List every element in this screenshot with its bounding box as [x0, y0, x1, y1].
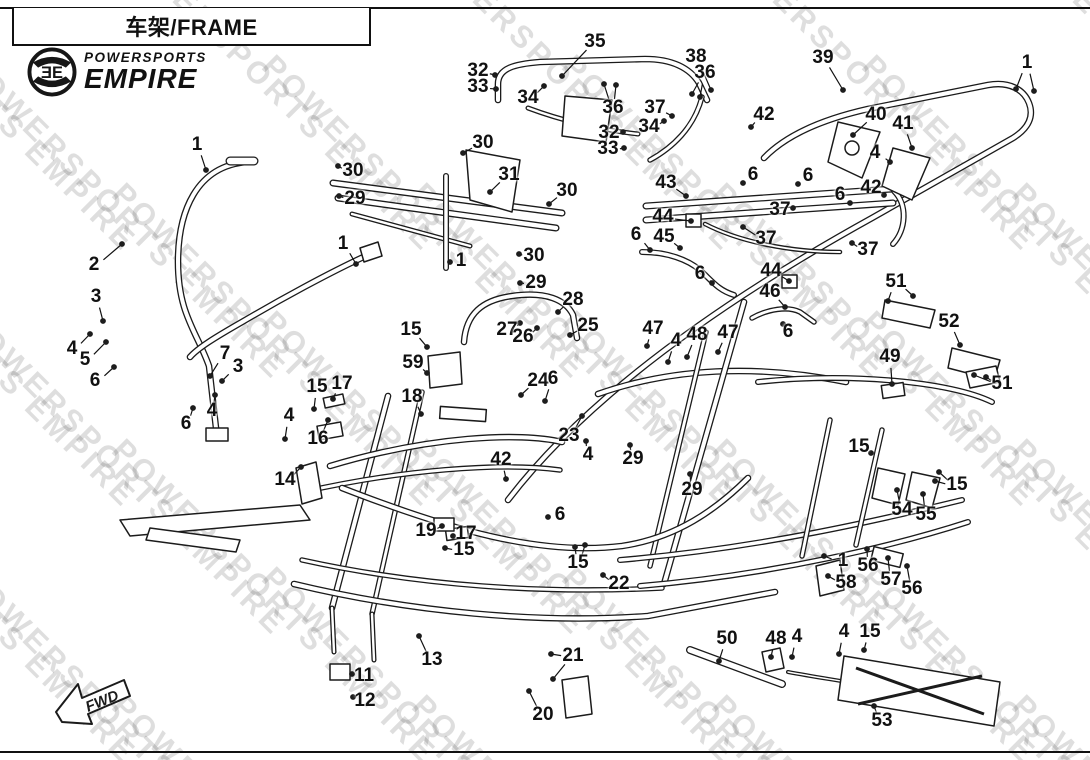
callout-leader: [830, 67, 843, 90]
fastener-bolt-icon: [851, 133, 856, 138]
fastener-bolt-icon: [614, 83, 619, 88]
fastener-bolt-icon: [451, 534, 456, 539]
fastener-bolt-icon: [493, 73, 498, 78]
fastener-bolt-icon: [519, 393, 524, 398]
fastener-bolt-icon: [488, 190, 493, 195]
fastener-bolt-icon: [886, 299, 891, 304]
fastener-bolt-icon: [848, 201, 853, 206]
fastener-bolt-icon: [602, 82, 607, 87]
fastener-bolt-icon: [865, 547, 870, 552]
brand-line1: POWERSPORTS: [84, 51, 207, 65]
fastener-bolt-icon: [933, 479, 938, 484]
fastener-bolt-icon: [425, 371, 430, 376]
fastener-bolt-icon: [336, 164, 341, 169]
fastener-bolt-icon: [551, 677, 556, 682]
fastener-bolt-icon: [543, 399, 548, 404]
fastener-bolt-icon: [709, 88, 714, 93]
fastener-bolt-icon: [88, 332, 93, 337]
fastener-bolt-icon: [580, 414, 585, 419]
brand-logo: ƎE POWERSPORTS EMPIRE: [26, 46, 207, 98]
fastener-bolt-icon: [584, 439, 589, 444]
callout-leader: [562, 50, 587, 76]
fastener-bolt-icon: [518, 321, 523, 326]
fastener-bolt-icon: [716, 350, 721, 355]
fastener-bolt-icon: [886, 556, 891, 561]
callout-leader: [701, 67, 711, 90]
parts-diagram-page: POWERSPORTS EMPIREPOWERSPORTS EMPIREPOWE…: [0, 0, 1090, 760]
fastener-bolt-icon: [688, 472, 693, 477]
fastener-bolt-icon: [443, 546, 448, 551]
fastener-bolt-icon: [850, 241, 855, 246]
fastener-bolt-icon: [841, 88, 846, 93]
fastener-bolt-icon: [895, 488, 900, 493]
fastener-bolt-icon: [220, 379, 225, 384]
fastener-bolt-icon: [890, 382, 895, 387]
fastener-bolt-icon: [741, 225, 746, 230]
fastener-bolt-icon: [573, 545, 578, 550]
fastener-bolt-icon: [690, 92, 695, 97]
fastener-bolt-icon: [326, 418, 331, 423]
fwd-arrow: FWD: [48, 672, 134, 735]
fastener-bolt-icon: [527, 689, 532, 694]
fastener-bolt-icon: [837, 652, 842, 657]
fastener-bolt-icon: [120, 242, 125, 247]
fastener-bolt-icon: [796, 182, 801, 187]
fastener-bolt-icon: [568, 333, 573, 338]
svg-text:ƎE: ƎE: [41, 64, 63, 82]
fastener-bolt-icon: [822, 554, 827, 559]
fastener-bolt-icon: [911, 294, 916, 299]
fastener-bolt-icon: [337, 194, 342, 199]
fastener-bolt-icon: [518, 281, 523, 286]
fastener-bolt-icon: [419, 412, 424, 417]
fastener-bolt-icon: [783, 305, 788, 310]
fastener-bolt-icon: [684, 194, 689, 199]
fastener-bolt-icon: [958, 343, 963, 348]
fastener-bolt-icon: [882, 193, 887, 198]
fastener-bolt-icon: [104, 340, 109, 345]
page-title: 车架/FRAME: [125, 10, 257, 42]
fastener-bolt-icon: [101, 319, 106, 324]
fastener-bolt-icon: [517, 252, 522, 257]
fastener-bolt-icon: [547, 202, 552, 207]
fastener-bolt-icon: [869, 451, 874, 456]
fastener-bolt-icon: [645, 344, 650, 349]
fastener-bolt-icon: [583, 543, 588, 548]
fastener-bolt-icon: [621, 130, 626, 135]
fastener-bolt-icon: [549, 652, 554, 657]
fastener-bolt-icon: [910, 146, 915, 151]
brand-emblem-icon: ƎE: [26, 46, 78, 98]
fastener-bolt-icon: [448, 260, 453, 265]
fastener-bolt-icon: [710, 281, 715, 286]
fastener-bolt-icon: [417, 634, 422, 639]
fastener-bolt-icon: [622, 146, 627, 151]
fastener-bolt-icon: [440, 524, 445, 529]
fastener-bolt-icon: [862, 648, 867, 653]
fastener-bolt-icon: [213, 393, 218, 398]
fastener-bolt-icon: [666, 360, 671, 365]
fastener-bolt-icon: [331, 397, 336, 402]
brand-line2: EMPIRE: [84, 65, 207, 93]
fastener-bolt-icon: [461, 151, 466, 156]
fastener-bolt-icon: [921, 492, 926, 497]
fastener-bolt-icon: [972, 373, 977, 378]
fastener-bolt-icon: [535, 326, 540, 331]
fastener-bolt-icon: [312, 407, 317, 412]
fastener-bolt-icon: [670, 114, 675, 119]
fastener-bolt-icon: [769, 655, 774, 660]
fastener-bolt-icon: [826, 574, 831, 579]
fwd-arrow-label: FWD: [83, 687, 121, 716]
fastener-bolt-icon: [425, 345, 430, 350]
fastener-bolt-icon: [678, 246, 683, 251]
fastener-bolt-icon: [299, 465, 304, 470]
fastener-bolt-icon: [781, 322, 786, 327]
title-box: 车架/FRAME: [12, 8, 371, 46]
fastener-bolt-icon: [350, 672, 355, 677]
fastener-bolt-icon: [984, 375, 989, 380]
fastener-bolt-icon: [204, 168, 209, 173]
fastener-bolt-icon: [494, 87, 499, 92]
fastener-bolt-icon: [556, 310, 561, 315]
fastener-bolt-icon: [283, 437, 288, 442]
fastener-bolt-icon: [741, 181, 746, 186]
fastener-bolt-icon: [191, 406, 196, 411]
fastener-bolt-icon: [787, 279, 792, 284]
fastener-bolt-icon: [888, 160, 893, 165]
fastener-bolt-icon: [749, 125, 754, 130]
fastener-bolt-icon: [648, 248, 653, 253]
callout-leader-layer: [0, 0, 1090, 760]
fastener-bolt-icon: [112, 365, 117, 370]
fastener-bolt-icon: [689, 219, 694, 224]
fastener-bolt-icon: [560, 74, 565, 79]
fastener-bolt-icon: [698, 95, 703, 100]
fastener-bolt-icon: [872, 704, 877, 709]
fastener-bolt-icon: [504, 477, 509, 482]
fastener-bolt-icon: [208, 374, 213, 379]
fastener-bolt-icon: [628, 443, 633, 448]
bottom-border-rule: [0, 751, 1090, 753]
fastener-bolt-icon: [542, 84, 547, 89]
callout-leader: [103, 244, 122, 260]
fastener-bolt-icon: [546, 515, 551, 520]
fastener-bolt-icon: [662, 119, 667, 124]
fastener-bolt-icon: [1014, 87, 1019, 92]
fastener-bolt-icon: [905, 564, 910, 569]
brand-words: POWERSPORTS EMPIRE: [84, 51, 207, 94]
fastener-bolt-icon: [601, 573, 606, 578]
fastener-bolt-icon: [354, 262, 359, 267]
fastener-bolt-icon: [685, 355, 690, 360]
fastener-bolt-icon: [717, 659, 722, 664]
fastener-bolt-icon: [937, 470, 942, 475]
fastener-bolt-icon: [791, 206, 796, 211]
fastener-bolt-icon: [1032, 89, 1037, 94]
fastener-bolt-icon: [790, 655, 795, 660]
fastener-bolt-icon: [351, 695, 356, 700]
